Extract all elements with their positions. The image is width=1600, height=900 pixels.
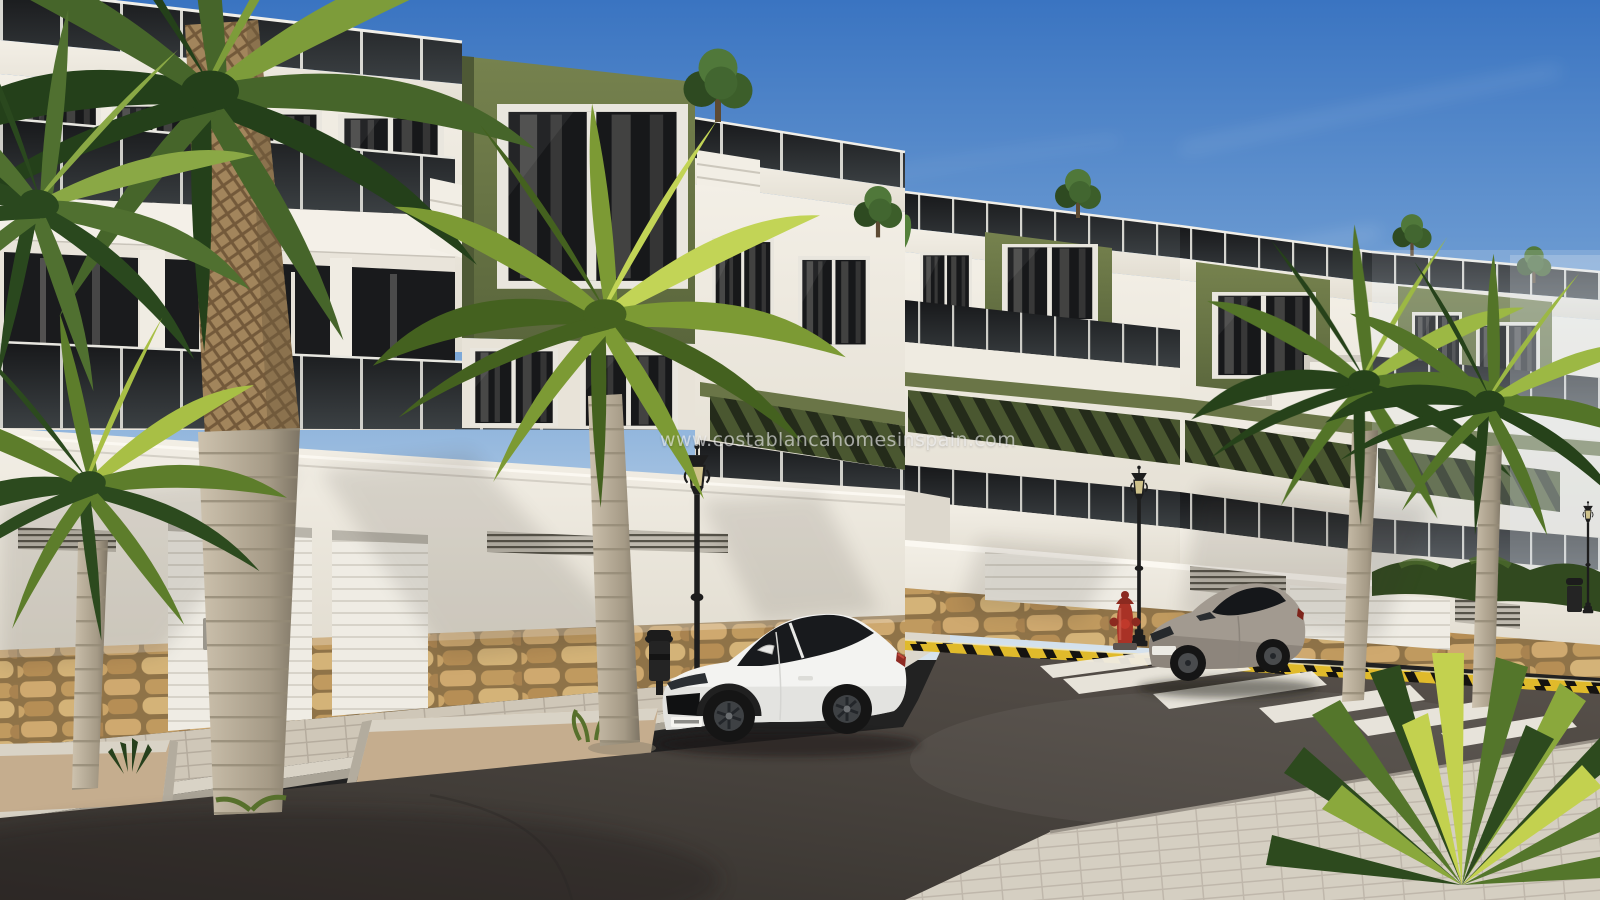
vent-grille [628, 530, 728, 553]
render-photo: www.costablancahomesinspain.com [0, 0, 1600, 900]
license-plate [1152, 646, 1176, 655]
trash-bin [1566, 578, 1583, 612]
watermark-text: www.costablancahomesinspain.com [660, 429, 960, 451]
door-handle [798, 676, 813, 681]
car-grille [666, 693, 700, 716]
